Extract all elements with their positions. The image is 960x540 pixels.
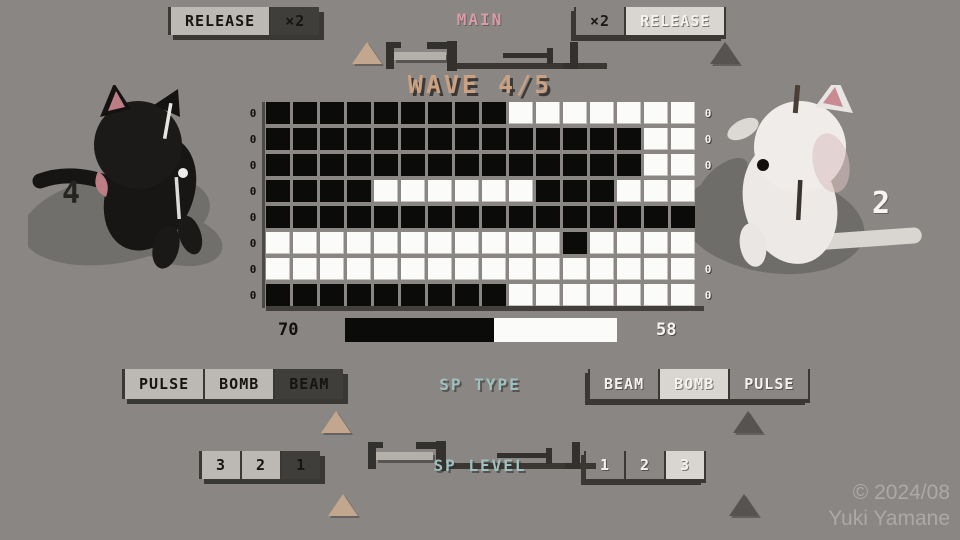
button-pulse[interactable]: PULSE [122, 369, 203, 399]
board-cell-black [455, 154, 479, 176]
board-cell-white [671, 284, 695, 306]
up-triangle-right-bottom [729, 494, 759, 516]
left-score: 70 [278, 320, 298, 340]
board-cell-black [293, 284, 317, 306]
main-menu-label[interactable]: MAIN [405, 10, 555, 29]
board-cell-white [644, 102, 668, 124]
board-cell-black [347, 180, 371, 202]
board-cell-white [509, 258, 533, 280]
sp-level-group-left: 321 [199, 451, 320, 479]
board-cell-white [644, 232, 668, 254]
board-cell-black [293, 154, 317, 176]
board-cell-white [590, 232, 614, 254]
board-cell-white [563, 284, 587, 306]
board-cell-black [347, 128, 371, 150]
sp-type-group-left: PULSEBOMBBEAM [122, 369, 343, 399]
game-screen: RELEASE×2 MAIN ×2RELEASE WAVE 4/5 000000… [0, 0, 960, 540]
board-cell-black [320, 102, 344, 124]
row-label-left: 0 [250, 237, 257, 250]
board-cell-white [536, 284, 560, 306]
slider-fill [394, 52, 446, 60]
territory-board: 0000000000000000 [243, 102, 718, 306]
button-bomb[interactable]: BOMB [203, 369, 273, 399]
board-cell-black [509, 154, 533, 176]
board-cell-black [347, 206, 371, 228]
slider-handle[interactable] [447, 41, 457, 71]
board-cell-black [590, 206, 614, 228]
white-cat-character [695, 85, 933, 283]
board-cell-black [428, 206, 452, 228]
board-cell-white [590, 102, 614, 124]
board-cell-white [590, 284, 614, 306]
board-cell-white [671, 102, 695, 124]
board-cell-white [428, 180, 452, 202]
board-cell-white [617, 232, 641, 254]
board-cell-black [617, 128, 641, 150]
board-cell-white [563, 102, 587, 124]
board-cell-black [536, 206, 560, 228]
board-cell-white [617, 258, 641, 280]
row-label-left: 0 [250, 159, 257, 172]
board-cell-white [509, 284, 533, 306]
board-cell-black [482, 206, 506, 228]
sp-level-label: SP LEVEL [405, 456, 555, 475]
slider-left-bracket [386, 42, 394, 69]
board-cell-black [482, 154, 506, 176]
board-cell-black [347, 154, 371, 176]
row-label-right: 0 [705, 289, 712, 302]
board-cell-black [428, 128, 452, 150]
board-cell-white [509, 180, 533, 202]
board-cell-black [644, 206, 668, 228]
up-triangle-left-top [352, 42, 382, 64]
wave-counter: WAVE 4/5 [330, 70, 630, 99]
row-label-left: 0 [250, 133, 257, 146]
top-slider[interactable] [386, 40, 578, 72]
board-cell-black [617, 206, 641, 228]
board-cell-white [536, 102, 560, 124]
board-cell-black [428, 102, 452, 124]
board-cell-black [401, 284, 425, 306]
sp-type-label: SP TYPE [405, 375, 555, 394]
board-cell-white [455, 180, 479, 202]
board-cell-white [671, 232, 695, 254]
button-2[interactable]: ×2 [574, 7, 624, 35]
up-triangle-left-bottom [328, 494, 358, 516]
board-cell-white [644, 154, 668, 176]
territory-progress-bar [345, 318, 617, 342]
row-label-left: 0 [250, 107, 257, 120]
board-cell-white [617, 180, 641, 202]
board-cell-white [536, 232, 560, 254]
board-cell-white [644, 258, 668, 280]
up-triangle-right-top [710, 42, 740, 64]
button-1[interactable]: 1 [280, 451, 320, 479]
board-cell-black [590, 154, 614, 176]
board-cell-black [563, 128, 587, 150]
board-cell-white [347, 258, 371, 280]
board-cell-black [563, 206, 587, 228]
button-bomb[interactable]: BOMB [658, 369, 728, 399]
sp-level-group-right: 123 [584, 451, 706, 483]
board-cell-black [293, 102, 317, 124]
board-cell-black [536, 180, 560, 202]
board-cell-black [509, 206, 533, 228]
black-cat-character [28, 85, 246, 283]
board-cell-white [671, 180, 695, 202]
board-cell-black [428, 284, 452, 306]
board-cell-white [617, 284, 641, 306]
button-3[interactable]: 3 [199, 451, 240, 479]
button-3[interactable]: 3 [664, 451, 706, 479]
board-cell-black [266, 180, 290, 202]
board-cell-black [293, 206, 317, 228]
board-cell-black [482, 102, 506, 124]
credit-line-1: © 2024/08 [828, 480, 950, 506]
board-cell-black [374, 206, 398, 228]
board-cell-black [482, 128, 506, 150]
button-1[interactable]: 1 [584, 451, 624, 479]
board-cell-white [563, 258, 587, 280]
board-cell-white [455, 232, 479, 254]
board-cell-white [428, 232, 452, 254]
board-cell-white [671, 154, 695, 176]
board-cell-black [590, 128, 614, 150]
board-cell-black [590, 180, 614, 202]
board-cell-white [320, 258, 344, 280]
slider-right-bracket [572, 442, 580, 469]
board-cell-white [455, 258, 479, 280]
board-cell-black [563, 180, 587, 202]
board-cell-black [266, 102, 290, 124]
board-cell-white [671, 258, 695, 280]
board-cell-white [671, 128, 695, 150]
board-cell-white [293, 258, 317, 280]
board-cell-black [617, 154, 641, 176]
right-player-counter: 2 [872, 186, 890, 221]
button-release[interactable]: RELEASE [624, 7, 726, 35]
board-cell-black [428, 154, 452, 176]
button-2[interactable]: ×2 [269, 7, 319, 35]
board-cell-white [617, 102, 641, 124]
up-triangle-left-middle [321, 411, 351, 433]
board-cell-white [644, 128, 668, 150]
button-2[interactable]: 2 [624, 451, 664, 479]
board-cell-black [401, 128, 425, 150]
board-cell-black [347, 102, 371, 124]
button-beam[interactable]: BEAM [273, 369, 343, 399]
board-cell-white [374, 258, 398, 280]
board-cell-black [266, 128, 290, 150]
board-cell-white [266, 232, 290, 254]
board-cell-white [293, 232, 317, 254]
board-cell-black [320, 206, 344, 228]
row-label-left: 0 [250, 263, 257, 276]
board-cell-black [455, 206, 479, 228]
board-cell-black [482, 284, 506, 306]
credit-line-2: Yuki Yamane [828, 506, 950, 532]
board-cell-black [563, 232, 587, 254]
board-cell-black [671, 206, 695, 228]
progress-fill-black [345, 318, 494, 342]
board-cell-black [455, 284, 479, 306]
board-cell-white [482, 180, 506, 202]
board-cell-black [563, 154, 587, 176]
board-cell-black [401, 154, 425, 176]
button-beam[interactable]: BEAM [588, 369, 658, 399]
board-cell-black [455, 128, 479, 150]
slider-right-bracket [570, 42, 578, 69]
row-label-left: 0 [250, 211, 257, 224]
board-cell-black [374, 102, 398, 124]
board-cell-black [536, 128, 560, 150]
release-group-left: RELEASE×2 [168, 7, 319, 35]
board-cell-white [509, 232, 533, 254]
row-label-left: 0 [250, 289, 257, 302]
board-cell-black [347, 284, 371, 306]
board-cell-white [320, 232, 344, 254]
up-triangle-right-middle [733, 411, 763, 433]
board-cell-white [482, 232, 506, 254]
left-player-counter: 4 [62, 176, 80, 211]
board-cell-white [644, 180, 668, 202]
board-cell-white [644, 284, 668, 306]
board-cell-black [293, 128, 317, 150]
board-cell-white [536, 258, 560, 280]
board-cell-white [509, 102, 533, 124]
board-cell-black [374, 128, 398, 150]
row-label-left: 0 [250, 185, 257, 198]
board-cell-white [590, 258, 614, 280]
board-cell-black [293, 180, 317, 202]
slider-left-bracket [368, 442, 376, 469]
board-cell-black [401, 102, 425, 124]
board-cell-white [428, 258, 452, 280]
board-cell-black [320, 128, 344, 150]
board-cell-black [320, 180, 344, 202]
board-cell-black [374, 154, 398, 176]
button-release[interactable]: RELEASE [168, 7, 269, 35]
board-cell-black [374, 284, 398, 306]
release-group-right: ×2RELEASE [574, 7, 726, 39]
board-cell-black [320, 284, 344, 306]
board-cell-black [266, 206, 290, 228]
board-cell-black [266, 154, 290, 176]
copyright-credit: © 2024/08 Yuki Yamane [828, 480, 950, 533]
right-score: 58 [656, 320, 676, 340]
button-pulse[interactable]: PULSE [728, 369, 810, 399]
board-cell-black [266, 284, 290, 306]
board-cell-black [401, 206, 425, 228]
board-cell-white [401, 180, 425, 202]
board-cell-black [536, 154, 560, 176]
sp-type-group-right: BEAMBOMBPULSE [588, 369, 810, 403]
board-cell-black [509, 128, 533, 150]
board-cell-white [374, 232, 398, 254]
button-2[interactable]: 2 [240, 451, 280, 479]
board-cell-black [455, 102, 479, 124]
board-cell-white [347, 232, 371, 254]
board-cell-black [320, 154, 344, 176]
board-cell-white [401, 232, 425, 254]
slider-track-line [503, 53, 553, 58]
board-shadow [266, 306, 704, 311]
board-cell-white [266, 258, 290, 280]
board-cell-white [482, 258, 506, 280]
board-cell-white [401, 258, 425, 280]
board-cell-white [374, 180, 398, 202]
